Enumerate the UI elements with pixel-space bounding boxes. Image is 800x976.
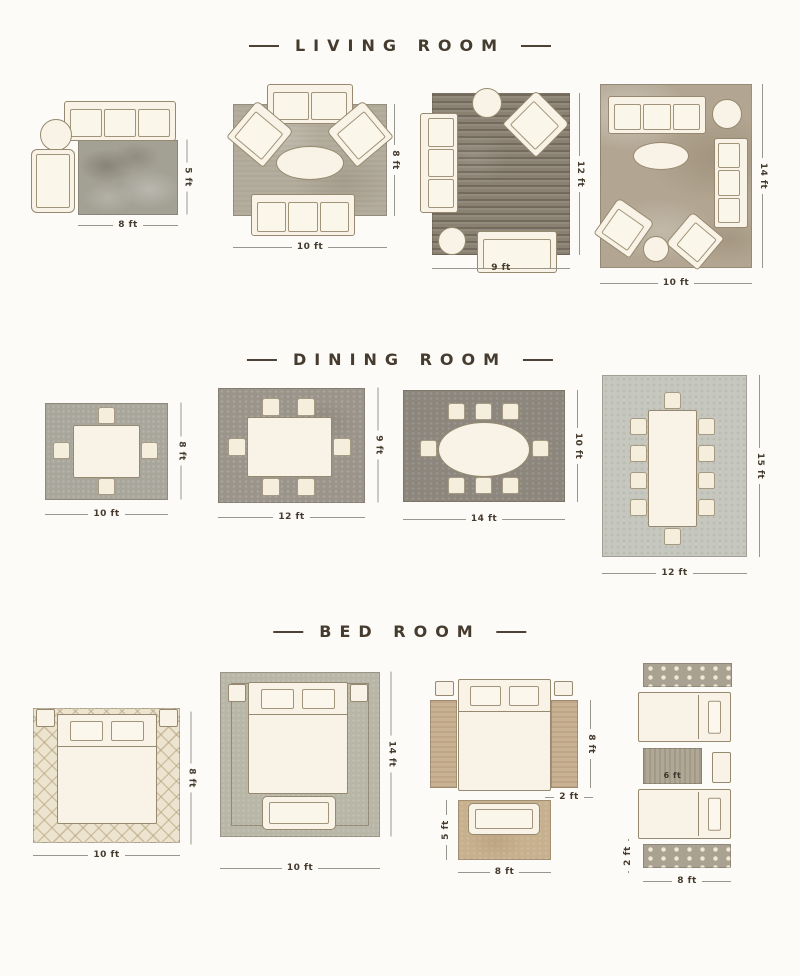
dimension-label: 10 ft	[282, 862, 318, 874]
pillow-icon	[708, 798, 721, 831]
dimension-line	[446, 800, 447, 815]
dining-chair-icon	[475, 477, 492, 494]
sofa-cushion	[428, 118, 454, 147]
dim-height: 10 ft	[572, 390, 584, 502]
bench-icon	[262, 796, 336, 830]
dining-room-title: DINING ROOM	[247, 350, 553, 369]
rug	[78, 140, 178, 215]
round-table-icon	[643, 236, 669, 262]
runner-rug	[430, 700, 457, 788]
dimension-line	[580, 192, 581, 255]
dimension-line	[191, 712, 192, 764]
rug-size-guide: LIVING ROOM 8 ft 5 ft	[0, 0, 800, 976]
dimension-line	[591, 759, 592, 788]
dim-foot-rug-width: 8 ft	[458, 866, 551, 878]
title-dash	[273, 631, 303, 633]
dim-width: 10 ft	[600, 277, 752, 289]
title-dash	[249, 45, 279, 47]
dimension-label: 8 ft	[585, 729, 597, 759]
sofa-icon	[251, 194, 355, 236]
dim-width: 10 ft	[233, 241, 387, 253]
nightstand-icon	[228, 684, 246, 702]
dimension-line	[391, 772, 392, 836]
dining-chair-icon	[262, 478, 280, 496]
sofa-icon	[714, 138, 748, 228]
dining-chair-icon	[228, 438, 246, 456]
dim-width: 12 ft	[218, 511, 365, 523]
dining-chair-icon	[98, 407, 115, 424]
dimension-label: 14 ft	[757, 158, 769, 194]
dining-chair-icon	[297, 478, 315, 496]
dimension-line	[446, 845, 447, 860]
dimension-line	[763, 84, 764, 158]
dining-chair-icon	[448, 477, 465, 494]
dimension-line	[395, 104, 396, 145]
sofa-cushion	[614, 104, 641, 130]
dimension-label: 10 ft	[88, 849, 124, 861]
dimension-label: 8 ft	[389, 145, 401, 175]
runner-rug	[643, 663, 732, 687]
dimension-line	[628, 871, 629, 873]
dimension-label: 10 ft	[658, 277, 694, 289]
dimension-label: 8 ft	[490, 866, 520, 878]
title-dash	[247, 359, 277, 361]
pillow-icon	[470, 686, 501, 706]
bed-icon	[248, 682, 348, 794]
bench-seat	[269, 802, 329, 824]
bench-seat	[475, 809, 533, 829]
bed-icon	[638, 789, 731, 839]
dim-height: 8 ft	[176, 403, 188, 500]
dim-runner-height: 8 ft	[585, 700, 597, 788]
sofa-cushion	[104, 109, 136, 137]
dimension-label: 8 ft	[113, 219, 143, 231]
title-dash	[497, 631, 527, 633]
sofa-icon	[608, 96, 706, 134]
dim-height: 9 ft	[373, 388, 385, 503]
dimension-label: 14 ft	[386, 736, 398, 772]
runner-rug	[551, 700, 578, 788]
dining-chair-icon	[333, 438, 351, 456]
bed-headboard	[58, 715, 156, 747]
chaise-seat	[36, 154, 70, 208]
dimension-label: 14 ft	[466, 513, 502, 525]
runner-rug	[643, 844, 731, 868]
dining-chair-icon	[297, 398, 315, 416]
dim-height: 5 ft	[182, 140, 194, 215]
dimension-line	[458, 872, 490, 873]
dimension-line	[502, 519, 565, 520]
dimension-line	[760, 484, 761, 557]
dimension-line	[33, 855, 88, 856]
dining-chair-icon	[532, 440, 549, 457]
sofa-cushion	[643, 104, 670, 130]
dining-chair-icon	[475, 403, 492, 420]
dim-runner-width: 2 ft	[622, 839, 634, 873]
dining-chair-icon	[630, 445, 647, 462]
dining-chair-icon	[698, 445, 715, 462]
dimension-label: 8 ft	[186, 763, 198, 793]
dimension-line	[760, 375, 761, 448]
dimension-label: 5 ft	[440, 815, 452, 845]
dimension-line	[233, 247, 292, 248]
living-room-title: LIVING ROOM	[249, 36, 551, 55]
between-beds-rug: 6 ft	[643, 748, 702, 784]
dimension-line	[143, 225, 178, 226]
dimension-line	[516, 268, 570, 269]
dim-width: 8 ft	[643, 875, 731, 887]
dimension-line	[310, 517, 365, 518]
dimension-line	[702, 881, 731, 882]
dimension-line	[395, 175, 396, 216]
dining-chair-icon	[420, 440, 437, 457]
dining-chair-icon	[698, 472, 715, 489]
dining-chair-icon	[630, 472, 647, 489]
dimension-line	[602, 573, 656, 574]
dining-chair-icon	[698, 418, 715, 435]
dim-height: 8 ft	[186, 712, 198, 845]
dining-chair-icon	[698, 499, 715, 516]
dining-chair-icon	[262, 398, 280, 416]
dimension-line	[403, 519, 466, 520]
dim-runner-width: 2 ft	[545, 791, 593, 803]
dimension-line	[519, 872, 551, 873]
dimension-line	[600, 283, 658, 284]
sofa-cushion	[673, 104, 700, 130]
round-table-icon	[712, 99, 742, 129]
bench-icon	[468, 803, 540, 835]
sofa-cushion	[288, 202, 317, 232]
dim-height: 15 ft	[754, 375, 766, 557]
bed-headboard	[459, 680, 550, 712]
dim-height: 12 ft	[574, 93, 586, 255]
chaise-icon	[31, 149, 75, 213]
oval-dining-table-icon	[438, 422, 530, 477]
dimension-label: 9 ft	[486, 262, 516, 274]
dining-table-icon	[648, 410, 697, 527]
dimension-line	[218, 517, 273, 518]
dimension-line	[181, 403, 182, 437]
bed-room-title: BED ROOM	[273, 622, 526, 641]
dimension-label: 10 ft	[88, 508, 124, 520]
dimension-line	[545, 797, 554, 798]
dimension-label: 10 ft	[572, 428, 584, 464]
rug-size-label: 6 ft	[664, 771, 682, 780]
dimension-line	[187, 140, 188, 163]
dimension-line	[578, 464, 579, 502]
dimension-line	[578, 390, 579, 428]
dimension-label: 8 ft	[176, 436, 188, 466]
nightstand-icon	[554, 681, 573, 696]
dimension-line	[191, 793, 192, 845]
sofa-cushion	[273, 92, 309, 120]
dim-width: 10 ft	[33, 849, 180, 861]
dimension-line	[391, 672, 392, 736]
dining-table-icon	[73, 425, 140, 478]
round-table-icon	[472, 88, 502, 118]
dimension-label: 5 ft	[182, 162, 194, 192]
sofa-cushion	[428, 179, 454, 208]
section-title-text: LIVING ROOM	[295, 36, 505, 55]
dining-chair-icon	[502, 403, 519, 420]
sofa-cushion	[718, 198, 740, 223]
section-title-text: BED ROOM	[319, 622, 480, 641]
pillow-icon	[111, 721, 144, 741]
dining-chair-icon	[502, 477, 519, 494]
dimension-line	[125, 855, 180, 856]
sofa-cushion	[138, 109, 170, 137]
round-table-icon	[438, 227, 466, 255]
dimension-line	[643, 881, 672, 882]
dimension-line	[318, 868, 380, 869]
bed-icon	[458, 679, 551, 791]
title-dash	[521, 45, 551, 47]
pillow-icon	[509, 686, 540, 706]
dimension-label: 15 ft	[754, 448, 766, 484]
dimension-line	[584, 797, 593, 798]
dimension-line	[78, 225, 113, 226]
dimension-label: 8 ft	[672, 875, 702, 887]
dining-chair-icon	[630, 499, 647, 516]
sofa-cushion	[718, 170, 740, 195]
dim-height: 14 ft	[757, 84, 769, 268]
bed-icon	[57, 714, 157, 824]
sofa-icon	[64, 101, 176, 141]
dimension-line	[628, 839, 629, 841]
dining-table-icon	[247, 417, 332, 477]
dim-width: 14 ft	[403, 513, 565, 525]
dimension-line	[580, 93, 581, 156]
dimension-label: 9 ft	[373, 430, 385, 460]
title-dash	[523, 359, 553, 361]
dining-chair-icon	[98, 478, 115, 495]
dining-chair-icon	[630, 418, 647, 435]
nightstand-icon	[350, 684, 368, 702]
dim-width: 9 ft	[432, 262, 570, 274]
dim-height: 8 ft	[389, 104, 401, 216]
round-table-icon	[40, 119, 72, 151]
dimension-line	[45, 514, 88, 515]
bed-headboard	[249, 683, 347, 715]
dim-width: 10 ft	[45, 508, 168, 520]
oval-coffee-table-icon	[633, 142, 689, 170]
dim-foot-rug-height: 5 ft	[440, 800, 452, 860]
dimension-label: 12 ft	[656, 567, 692, 579]
dimension-line	[328, 247, 387, 248]
pillow-icon	[261, 689, 294, 709]
sofa-cushion	[718, 143, 740, 168]
dim-width: 10 ft	[220, 862, 380, 874]
pillow-icon	[70, 721, 103, 741]
nightstand-icon	[36, 709, 55, 727]
nightstand-icon	[435, 681, 454, 696]
bed-icon	[638, 692, 731, 742]
dining-chair-icon	[141, 442, 158, 459]
dimension-label: 12 ft	[574, 156, 586, 192]
dining-chair-icon	[53, 442, 70, 459]
dimension-label: 12 ft	[273, 511, 309, 523]
sofa-cushion	[320, 202, 349, 232]
sofa-cushion	[311, 92, 347, 120]
sofa-cushion	[428, 149, 454, 178]
dining-chair-icon	[448, 403, 465, 420]
section-title-text: DINING ROOM	[293, 350, 507, 369]
dim-width: 12 ft	[602, 567, 747, 579]
dimension-label: 2 ft	[622, 841, 634, 871]
dimension-label: 10 ft	[292, 241, 328, 253]
dimension-line	[378, 460, 379, 503]
nightstand-icon	[159, 709, 178, 727]
nightstand-icon	[712, 752, 731, 783]
sofa-cushion	[257, 202, 286, 232]
dimension-line	[220, 868, 282, 869]
dimension-line	[763, 194, 764, 268]
dimension-line	[591, 700, 592, 729]
dimension-label: 2 ft	[554, 791, 584, 803]
sofa-icon	[420, 113, 458, 213]
dining-chair-icon	[664, 392, 681, 409]
dim-width: 8 ft	[78, 219, 178, 231]
dimension-line	[181, 466, 182, 500]
dimension-line	[694, 283, 752, 284]
dimension-line	[187, 192, 188, 215]
dimension-line	[693, 573, 747, 574]
oval-coffee-table-icon	[276, 146, 344, 180]
sofa-cushion	[70, 109, 102, 137]
dim-height: 14 ft	[386, 672, 398, 837]
dimension-line	[432, 268, 486, 269]
dimension-line	[125, 514, 168, 515]
dimension-line	[378, 388, 379, 431]
dining-chair-icon	[664, 528, 681, 545]
pillow-icon	[302, 689, 335, 709]
pillow-icon	[708, 701, 721, 734]
